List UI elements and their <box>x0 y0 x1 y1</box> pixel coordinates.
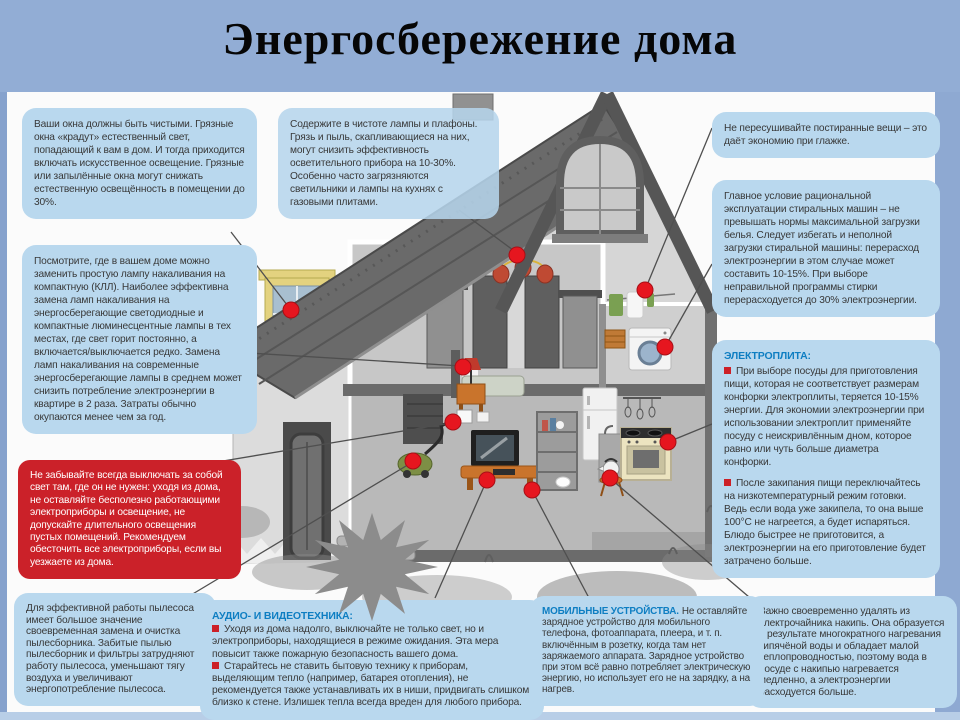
callout-dot <box>405 453 421 469</box>
callout-dot <box>657 339 673 355</box>
front-door <box>283 422 331 560</box>
callout-header: МОБИЛЬНЫЕ УСТРОЙСТВА. <box>542 606 679 617</box>
callout-electric-stove: ЭЛЕКТРОПЛИТА: При выборе посуды для приг… <box>712 340 940 578</box>
callout-text: МОБИЛЬНЫЕ УСТРОЙСТВА.Не оставляйте заряд… <box>542 606 752 696</box>
callout-text: После закипания пищи переключайтесь на н… <box>724 478 926 567</box>
callout-windows: Ваши окна должны быть чистыми. Грязные о… <box>22 108 257 219</box>
callout-vacuum-cleaner: Для эффективной работы пылесоса имеет бо… <box>14 593 216 706</box>
title-band: Энергосбережение дома <box>0 0 960 92</box>
callout-text: Посмотрите, где в вашем доме можно замен… <box>34 255 245 424</box>
callout-text: Не забывайте всегда выключать за собой с… <box>30 470 229 569</box>
callout-bullet: Старайтесь не ставить бытовую технику к … <box>212 661 532 710</box>
callout-header: АУДИО- И ВИДЕОТЕХНИКА: <box>212 610 532 622</box>
callout-bullet: При выборе посуды для приготовления пищи… <box>724 365 928 469</box>
infographic-canvas: Ваши окна должны быть чистыми. Грязные о… <box>7 92 935 712</box>
callout-text: Главное условие рациональной эксплуатаци… <box>724 190 928 307</box>
callout-dot <box>283 302 299 318</box>
callout-bullet: После закипания пищи переключайтесь на н… <box>724 477 928 568</box>
bullet-square-icon <box>212 662 219 669</box>
left-border <box>0 92 7 712</box>
callout-text: Не пересушивайте постиранные вещи – это … <box>724 122 928 148</box>
callout-header: ЭЛЕКТРОПЛИТА: <box>724 350 928 363</box>
callout-text: Для эффективной работы пылесоса имеет бо… <box>26 603 204 696</box>
callout-lamp-shades: Содержите в чистоте лампы и плафоны. Гря… <box>278 108 499 219</box>
callout-dot <box>660 434 676 450</box>
callout-dot <box>524 482 540 498</box>
callout-dot <box>637 282 653 298</box>
attic-arched-window <box>552 140 648 243</box>
bookshelf <box>537 412 577 490</box>
bullet-square-icon <box>724 367 731 374</box>
bullet-square-icon <box>212 625 219 632</box>
callout-washing-machine: Главное условие рациональной эксплуатаци… <box>712 180 940 317</box>
floor-slab <box>343 384 717 396</box>
callout-text: Ваши окна должны быть чистыми. Грязные о… <box>34 118 245 209</box>
callout-dot <box>509 247 525 263</box>
bullet-square-icon <box>724 479 731 486</box>
callout-bullet: Уходя из дома надолго, выключайте не тол… <box>212 624 532 661</box>
callout-text: Содержите в чистоте лампы и плафоны. Гря… <box>290 118 487 209</box>
slide: Энергосбережение дома <box>0 0 960 720</box>
callout-text: Старайтесь не ставить бытовую технику к … <box>212 661 529 709</box>
wardrobe <box>473 276 507 368</box>
laundry-basket <box>605 330 625 348</box>
upper-door-right <box>558 290 602 368</box>
wardrobe <box>525 276 559 368</box>
staircase <box>403 394 443 444</box>
callout-lamp-replacement: Посмотрите, где в вашем доме можно замен… <box>22 245 257 434</box>
callout-dot <box>479 472 495 488</box>
callout-text: Не оставляйте зарядное устройство для мо… <box>542 606 750 695</box>
callout-turn-off-lights: Не забывайте всегда выключать за собой с… <box>18 460 241 579</box>
page-title: Энергосбережение дома <box>0 0 960 65</box>
callout-text: Уходя из дома надолго, выключайте не тол… <box>212 624 498 659</box>
callout-dot <box>455 359 471 375</box>
callout-text: Важно своевременно удалять из электрочай… <box>759 606 945 698</box>
callout-mobile-devices: МОБИЛЬНЫЕ УСТРОЙСТВА.Не оставляйте заряд… <box>530 596 764 706</box>
callout-dot <box>445 414 461 430</box>
callout-electric-kettle: Важно своевременно удалять из электрочай… <box>747 596 957 708</box>
socket <box>477 412 489 422</box>
callout-text: При выборе посуды для приготовления пищи… <box>724 366 924 468</box>
callout-audio-video: АУДИО- И ВИДЕОТЕХНИКА: Уходя из дома над… <box>200 600 544 720</box>
callout-laundry-drying: Не пересушивайте постиранные вещи – это … <box>712 112 940 158</box>
callout-dot <box>602 470 618 486</box>
